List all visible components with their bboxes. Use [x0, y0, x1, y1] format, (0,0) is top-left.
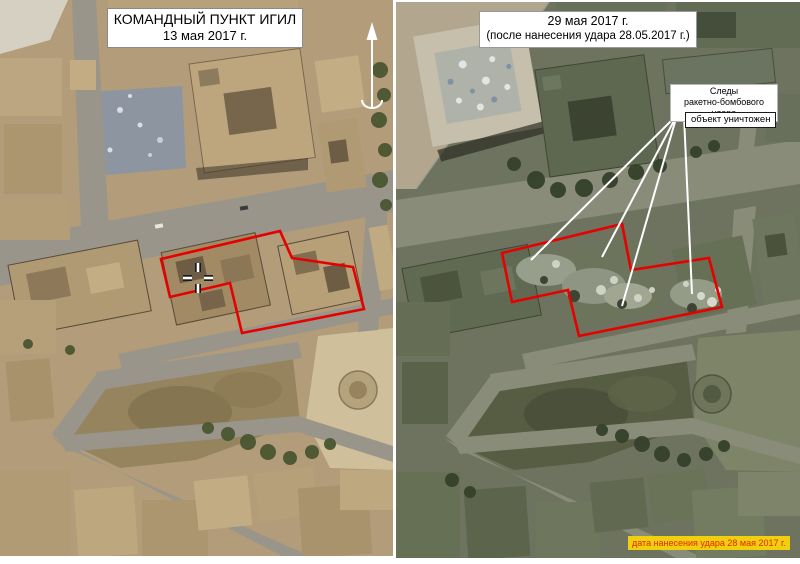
before-title: КОМАНДНЫЙ ПУНКТ ИГИЛ — [108, 11, 302, 28]
after-date: 29 мая 2017 г. — [480, 14, 696, 29]
dome-structure — [339, 371, 377, 409]
object-destroyed-label: объект уничтожен — [685, 112, 776, 128]
strike-traces-label-line1: Следы — [671, 86, 777, 97]
after-subtitle: (после нанесения удара 28.05.2017 г.) — [480, 29, 696, 44]
strike-date-label: дата нанесения удара 28 мая 2017 г. — [628, 536, 790, 550]
before-satellite-image — [0, 0, 393, 556]
dome-structure — [693, 375, 731, 413]
satellite-comparison: КОМАНДНЫЙ ПУНКТ ИГИЛ 13 мая 2017 г. 29 м… — [0, 0, 800, 564]
before-date: 13 мая 2017 г. — [108, 28, 302, 44]
after-title-box: 29 мая 2017 г. (после нанесения удара 28… — [479, 11, 697, 48]
before-title-box: КОМАНДНЫЙ ПУНКТ ИГИЛ 13 мая 2017 г. — [107, 8, 303, 48]
before-image-panel — [0, 0, 393, 556]
